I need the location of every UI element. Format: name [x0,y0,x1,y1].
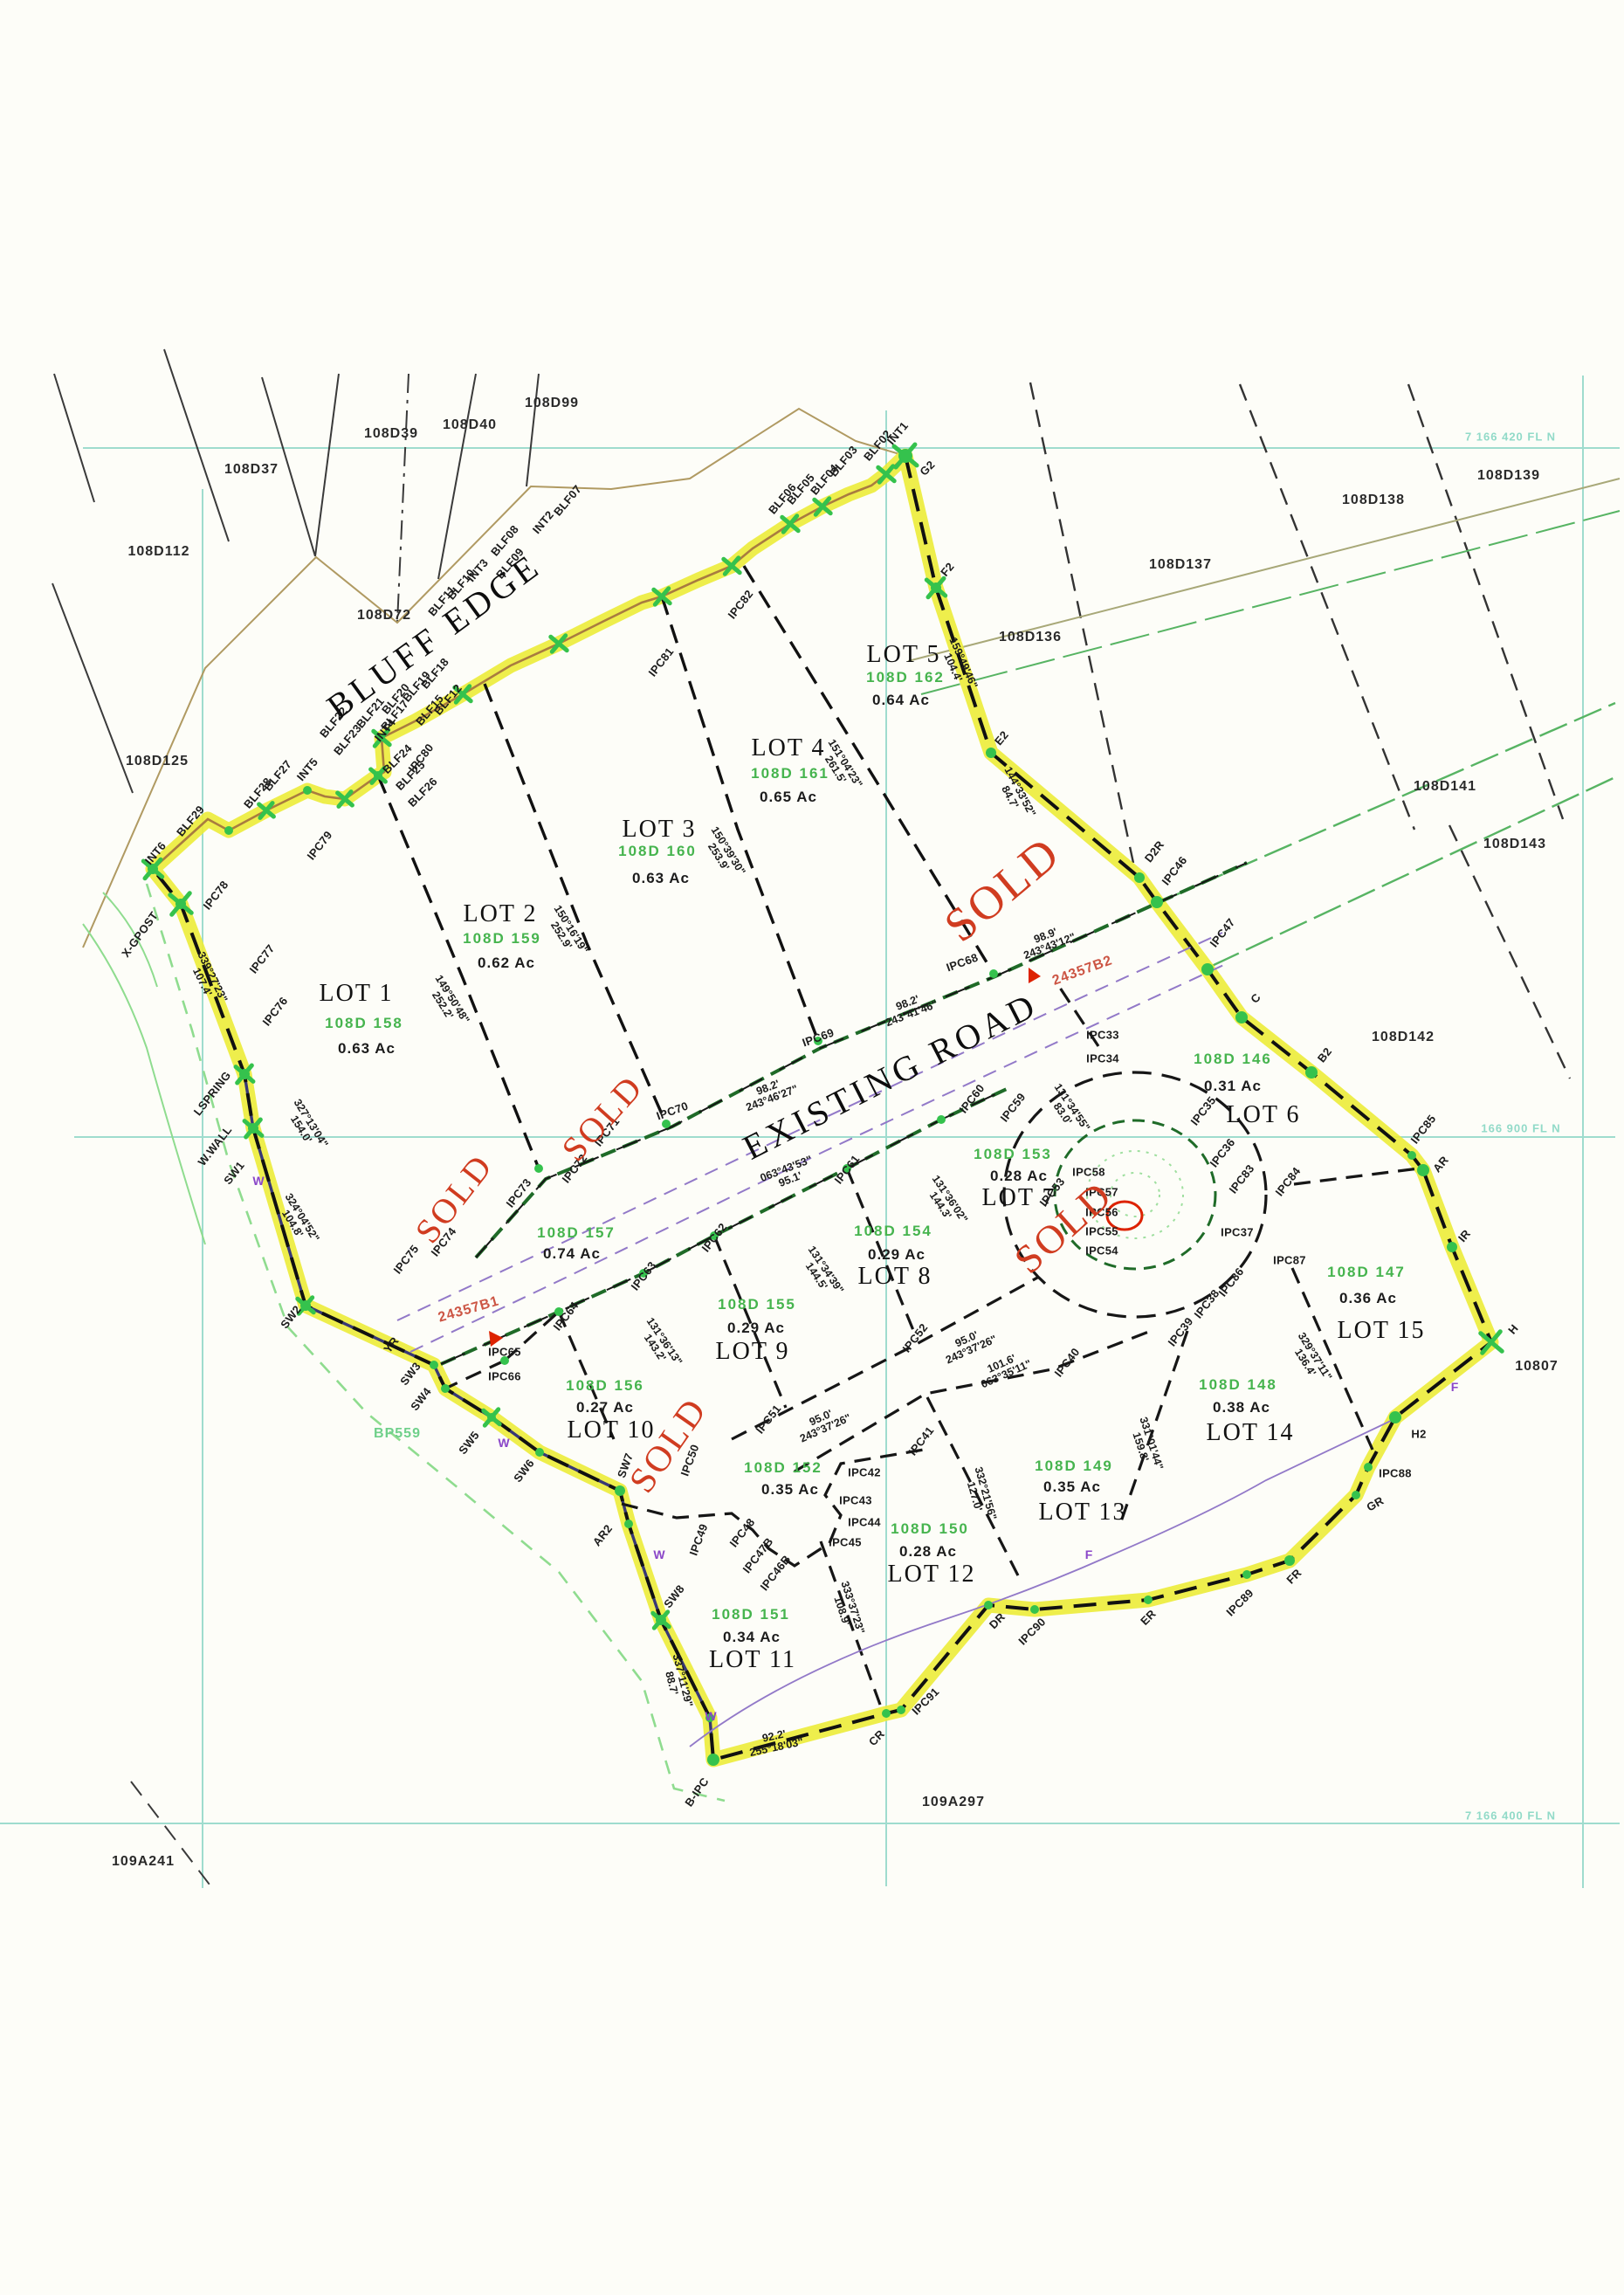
waterline-f-purple [690,1419,1394,1747]
road-edge-upper [476,863,1247,1258]
ne-corridor-lines [908,479,1620,966]
spring-contours [103,892,157,987]
red-arrow-24357b1 [489,1331,503,1347]
plat-map-drawing [0,0,1624,2295]
adjacent-parcel-lines-ne [1030,382,1570,1079]
cul-de-sac [1004,1072,1266,1317]
road-centerlines-purple [397,933,1229,1352]
red-circle-ipc56 [1107,1202,1142,1230]
lot-lines-north [378,566,994,1168]
red-arrow-24357b2 [1029,968,1041,983]
red-annotations [489,968,1142,1347]
bp559-line [83,884,725,1801]
adjacent-parcel-lines-nw [52,349,539,1888]
plat-map-page: 108D37108D39108D40108D99108D112108D72108… [0,0,1624,2295]
lot-lines-south [445,985,1419,1705]
road-edge-lower [441,1088,1008,1364]
road-edges [441,863,1247,1364]
